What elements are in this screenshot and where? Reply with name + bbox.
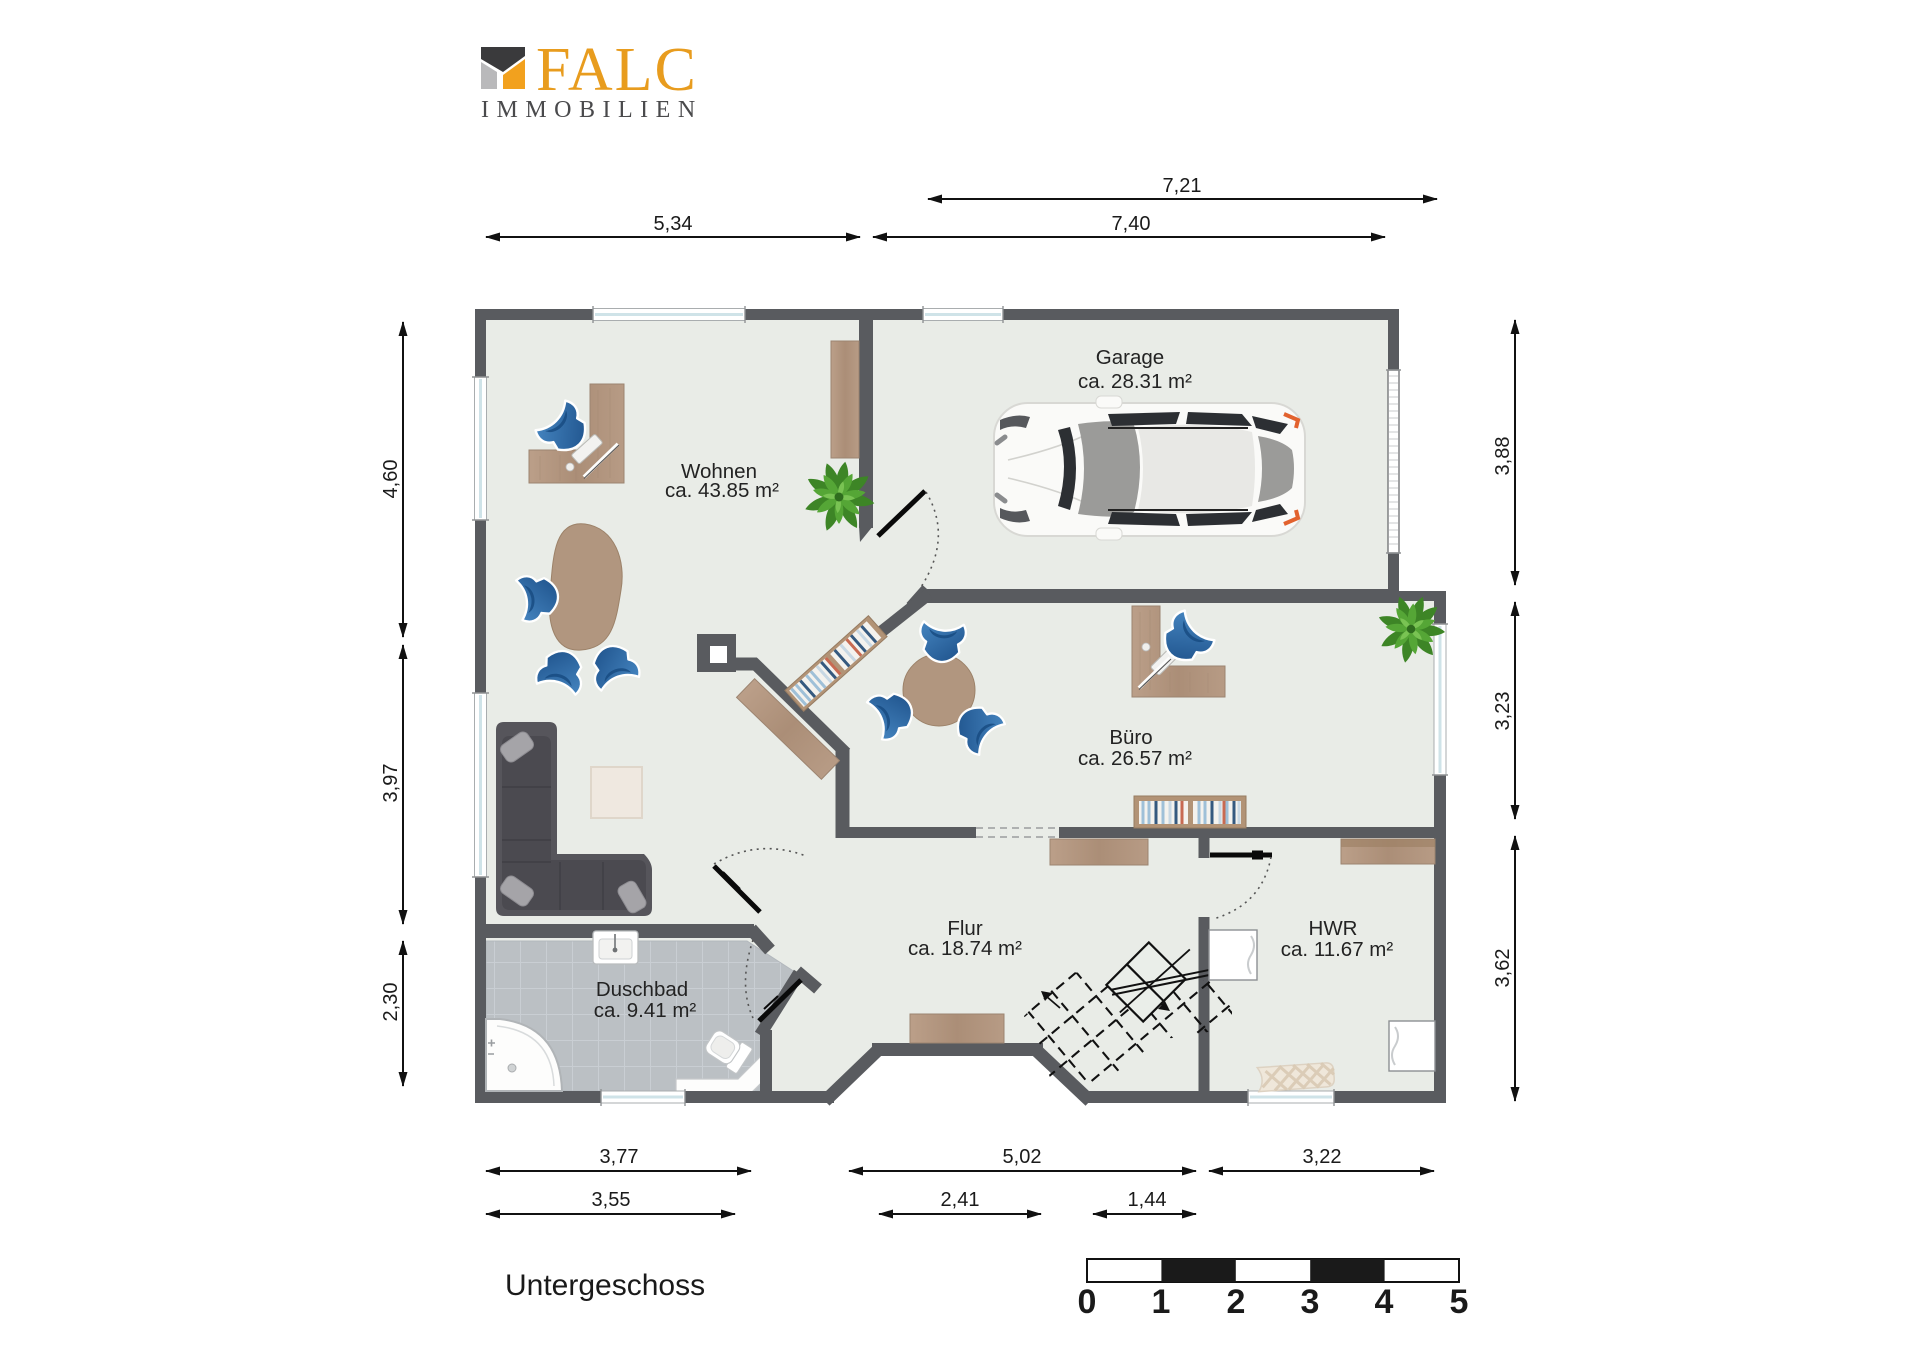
svg-text:7,40: 7,40 xyxy=(1112,213,1151,235)
svg-text:ca. 26.57 m²: ca. 26.57 m² xyxy=(1078,747,1192,770)
svg-text:Duschbad: Duschbad xyxy=(596,978,688,1001)
svg-text:3,88: 3,88 xyxy=(1492,437,1514,476)
svg-text:7,21: 7,21 xyxy=(1163,175,1202,197)
svg-text:3: 3 xyxy=(1301,1283,1320,1321)
svg-text:HWR: HWR xyxy=(1309,917,1358,940)
svg-text:3,62: 3,62 xyxy=(1492,949,1514,988)
svg-text:5,02: 5,02 xyxy=(1003,1146,1042,1168)
svg-text:5,34: 5,34 xyxy=(654,213,693,235)
svg-text:2: 2 xyxy=(1227,1283,1246,1321)
svg-text:ca. 43.85 m²: ca. 43.85 m² xyxy=(665,479,779,502)
svg-text:3,23: 3,23 xyxy=(1492,692,1514,731)
svg-text:1: 1 xyxy=(1152,1283,1171,1321)
svg-text:ca. 11.67 m²: ca. 11.67 m² xyxy=(1281,938,1394,961)
svg-text:3,22: 3,22 xyxy=(1303,1146,1342,1168)
svg-text:Garage: Garage xyxy=(1096,346,1164,369)
svg-text:0: 0 xyxy=(1078,1283,1097,1321)
svg-text:Untergeschoss: Untergeschoss xyxy=(505,1269,705,1302)
svg-text:3,77: 3,77 xyxy=(600,1146,639,1168)
svg-text:1,44: 1,44 xyxy=(1128,1189,1167,1211)
svg-text:3,55: 3,55 xyxy=(592,1189,631,1211)
svg-text:2,41: 2,41 xyxy=(941,1189,980,1211)
svg-text:4,60: 4,60 xyxy=(380,460,402,499)
svg-text:Büro: Büro xyxy=(1109,726,1152,749)
svg-text:ca. 28.31 m²: ca. 28.31 m² xyxy=(1078,370,1192,393)
svg-text:2,30: 2,30 xyxy=(380,983,402,1022)
svg-text:5: 5 xyxy=(1450,1283,1469,1321)
svg-text:IMMOBILIEN: IMMOBILIEN xyxy=(481,97,703,123)
svg-text:4: 4 xyxy=(1375,1283,1394,1321)
svg-text:ca. 9.41 m²: ca. 9.41 m² xyxy=(594,999,697,1022)
svg-text:FALC: FALC xyxy=(536,36,698,104)
svg-text:3,97: 3,97 xyxy=(380,764,402,803)
svg-text:ca. 18.74 m²: ca. 18.74 m² xyxy=(908,937,1022,960)
